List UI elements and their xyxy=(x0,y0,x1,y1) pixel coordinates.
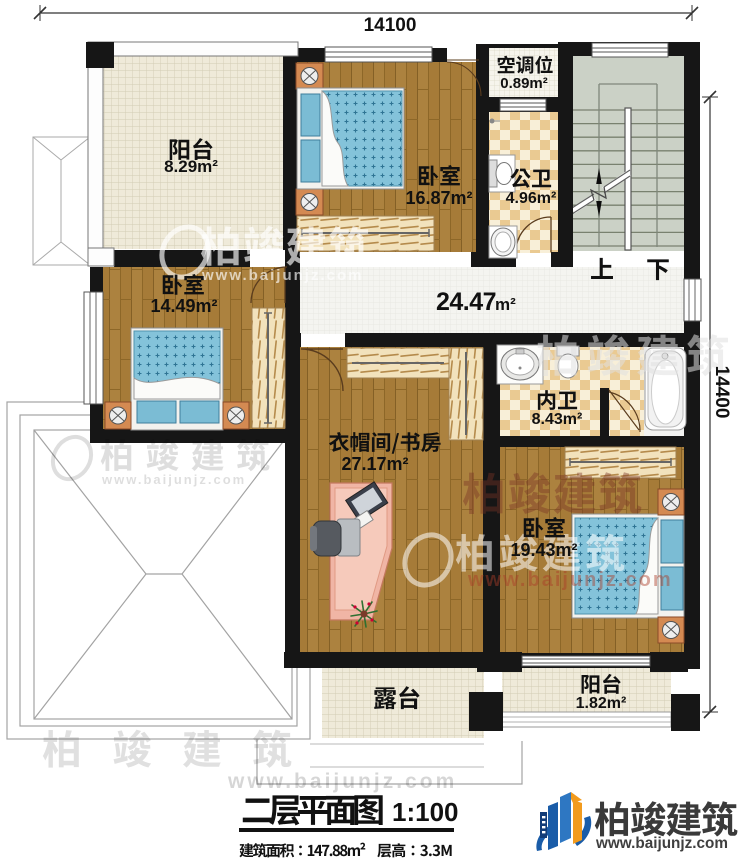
svg-text:0.89m²: 0.89m² xyxy=(500,75,548,92)
svg-text:27.17m²: 27.17m² xyxy=(341,454,408,474)
svg-text:www.baijunjz.com: www.baijunjz.com xyxy=(101,472,246,487)
svg-text:www.baijunjz.com: www.baijunjz.com xyxy=(201,267,363,284)
svg-text:8.43m²: 8.43m² xyxy=(532,411,583,428)
svg-text:16.87m²: 16.87m² xyxy=(405,188,472,208)
svg-text:1.82m²: 1.82m² xyxy=(576,695,627,712)
svg-text:1:100: 1:100 xyxy=(392,797,459,827)
svg-text:www.baijunjz.com: www.baijunjz.com xyxy=(227,770,457,793)
svg-text:24.47: 24.47 xyxy=(436,288,496,316)
svg-text:www.baijunjz.com: www.baijunjz.com xyxy=(467,569,673,591)
svg-text:m²: m² xyxy=(495,295,516,314)
svg-text:www.baijunjz.com: www.baijunjz.com xyxy=(595,835,728,852)
svg-text:19.43m²: 19.43m² xyxy=(510,540,577,560)
svg-text:14.49m²: 14.49m² xyxy=(150,296,217,316)
svg-text:14400: 14400 xyxy=(711,366,732,419)
svg-text:14100: 14100 xyxy=(364,15,417,36)
svg-text:8.29m²: 8.29m² xyxy=(164,157,218,176)
svg-text:4.96m²: 4.96m² xyxy=(506,190,557,207)
